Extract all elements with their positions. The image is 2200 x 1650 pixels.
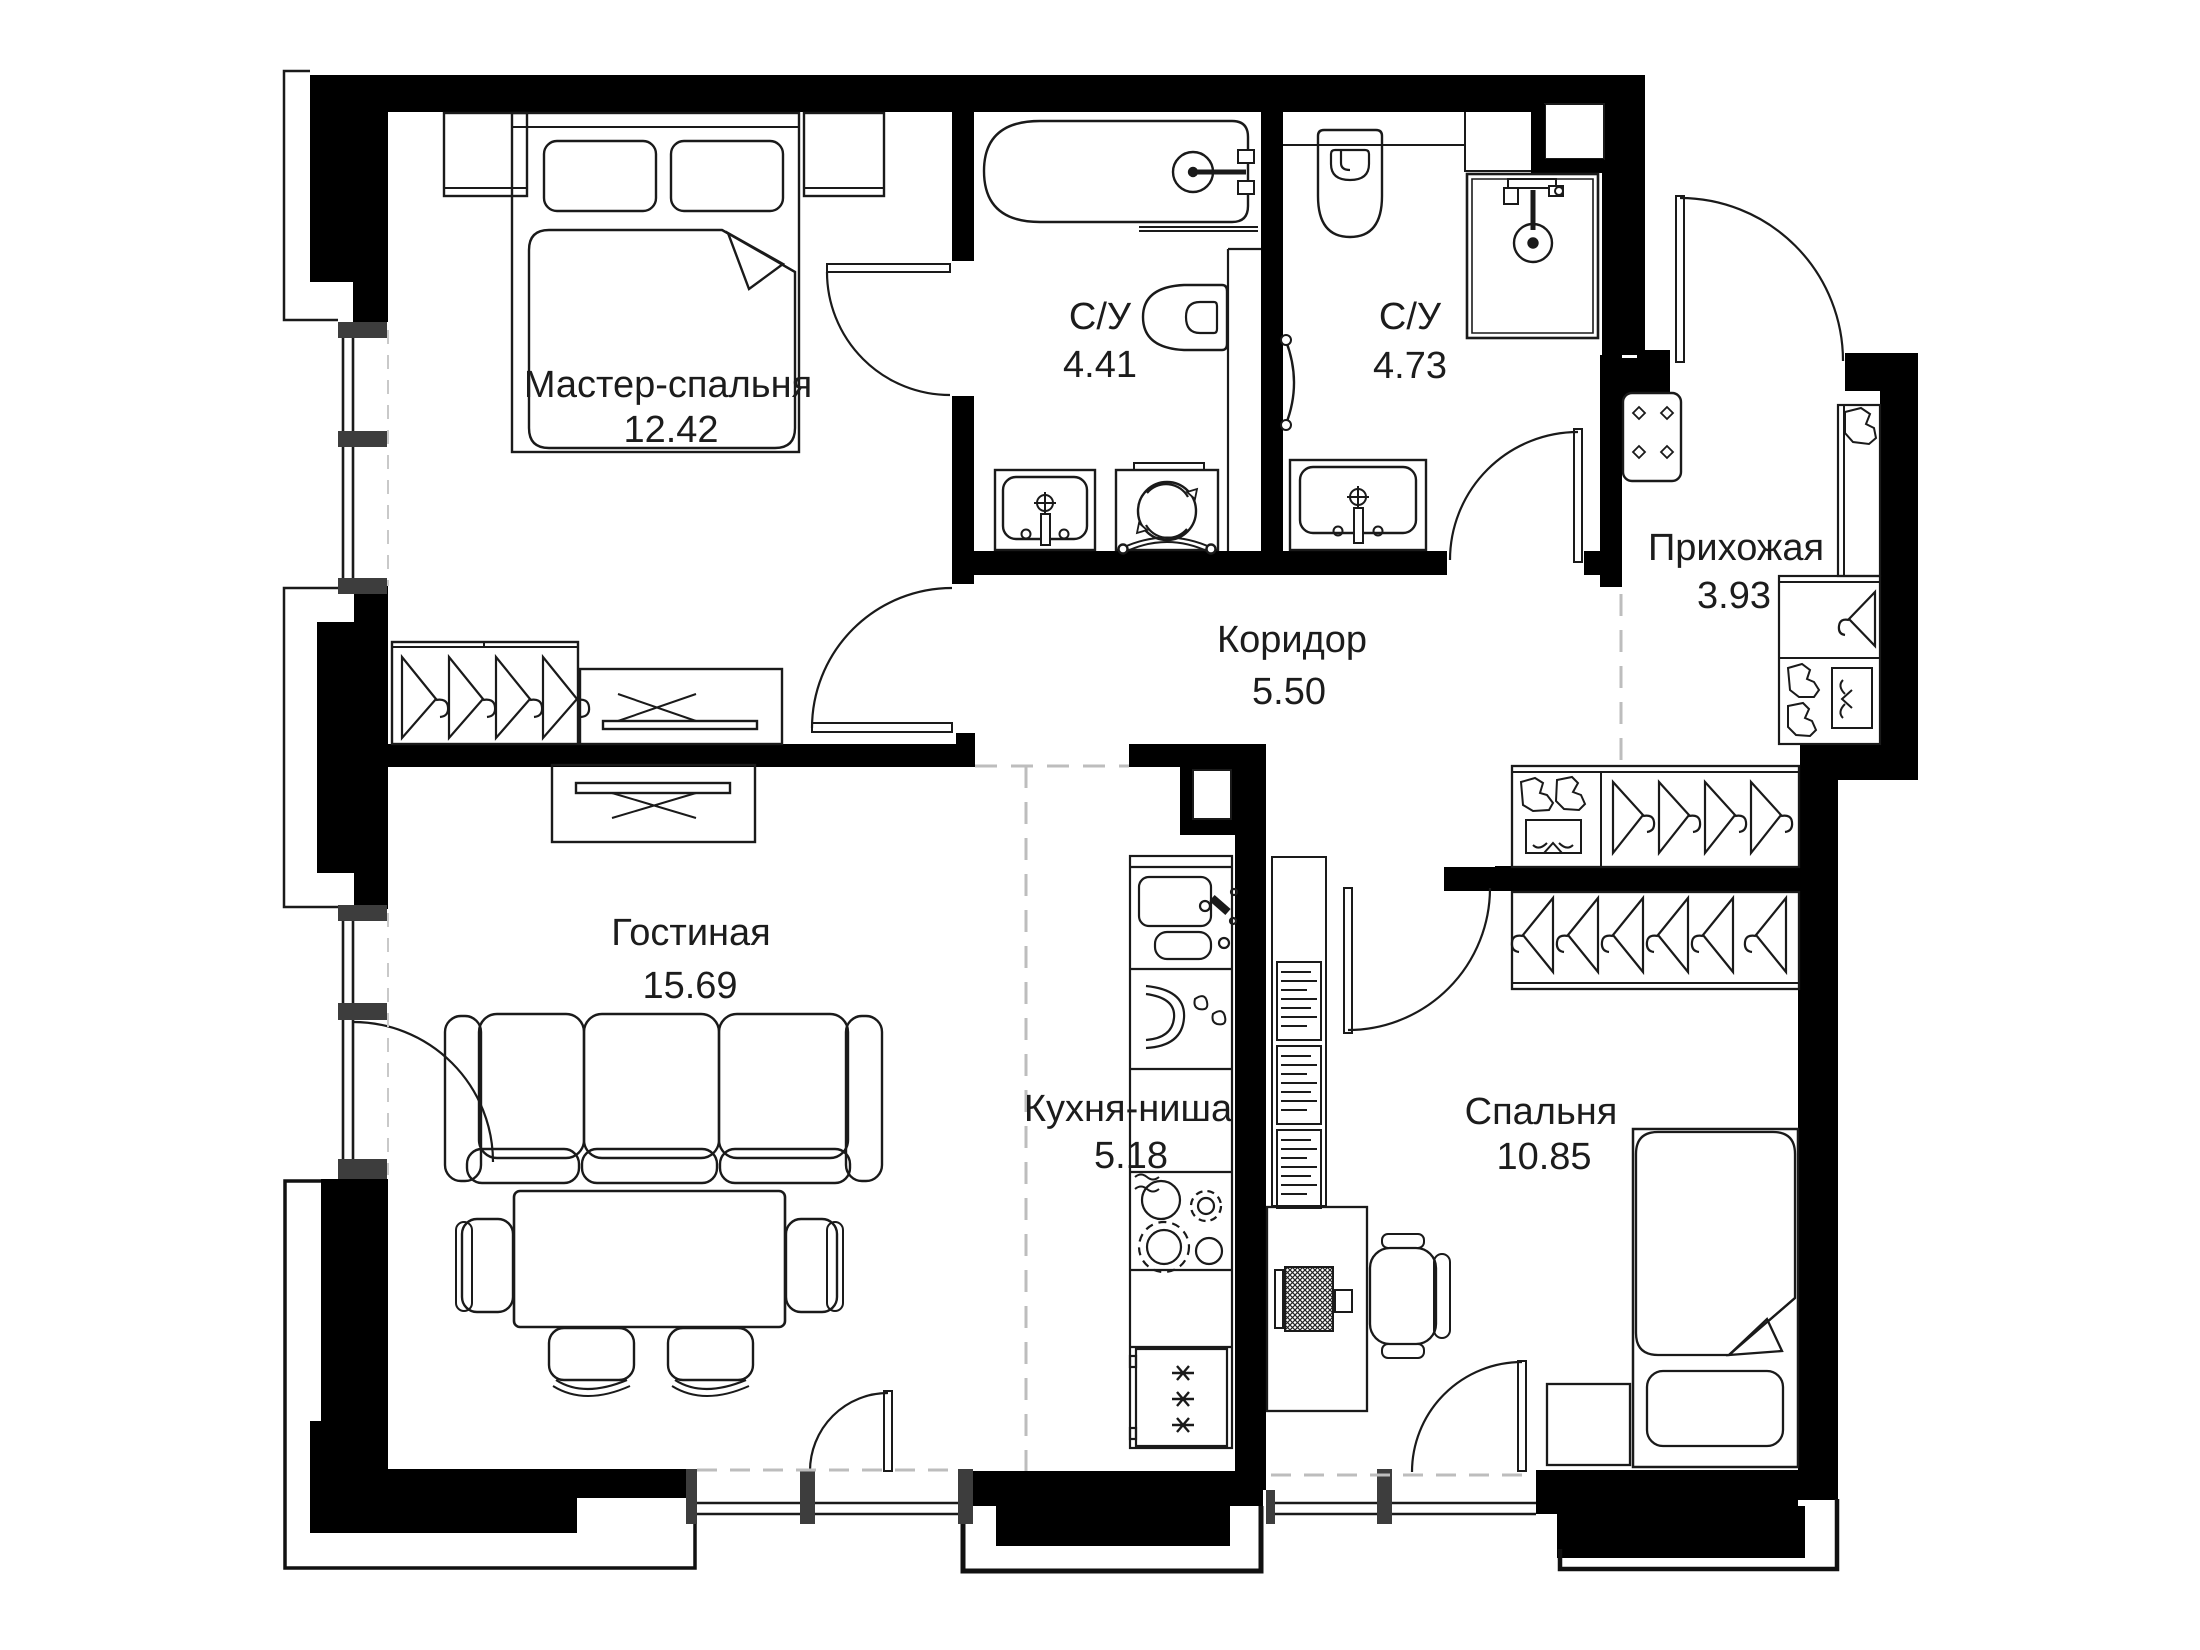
svg-text:Гостиная: Гостиная xyxy=(611,912,771,954)
svg-text:3.93: 3.93 xyxy=(1697,575,1771,617)
svg-text:Мастер-спальня: Мастер-спальня xyxy=(524,364,812,406)
svg-text:С/У: С/У xyxy=(1379,296,1442,338)
svg-text:5.50: 5.50 xyxy=(1252,671,1326,713)
svg-text:5.18: 5.18 xyxy=(1094,1135,1168,1177)
svg-text:Спальня: Спальня xyxy=(1465,1091,1618,1133)
svg-text:12.42: 12.42 xyxy=(623,409,718,451)
svg-text:15.69: 15.69 xyxy=(642,965,737,1007)
svg-text:С/У: С/У xyxy=(1069,296,1132,338)
svg-text:4.41: 4.41 xyxy=(1063,344,1137,386)
svg-text:Прихожая: Прихожая xyxy=(1648,527,1824,569)
svg-text:10.85: 10.85 xyxy=(1496,1136,1591,1178)
svg-text:4.73: 4.73 xyxy=(1373,345,1447,387)
svg-text:Кухня-ниша: Кухня-ниша xyxy=(1024,1088,1233,1130)
svg-text:Коридор: Коридор xyxy=(1217,619,1367,661)
